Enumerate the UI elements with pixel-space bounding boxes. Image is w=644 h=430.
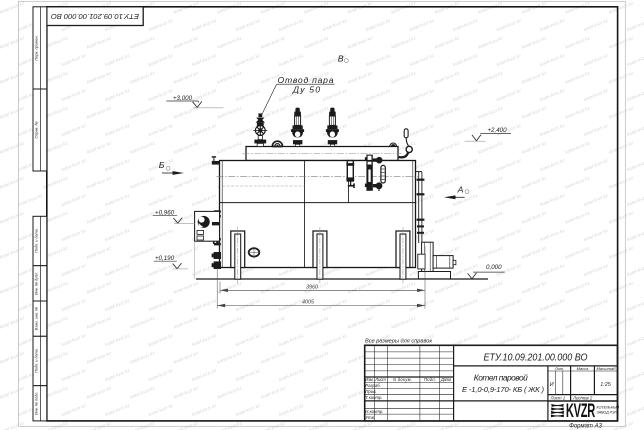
svg-text:4005: 4005 — [302, 300, 315, 306]
svg-text:0,000: 0,000 — [486, 264, 502, 271]
svg-text:Котел паровой: Котел паровой — [474, 372, 528, 382]
svg-text:Инв. № подл.: Инв. № подл. — [34, 392, 38, 416]
svg-text:Подп. и дата: Подп. и дата — [34, 349, 38, 373]
svg-text:Подп. и дата: Подп. и дата — [34, 229, 38, 253]
svg-text:Все размеры для справок: Все размеры для справок — [365, 338, 432, 344]
svg-text:Н.контр.: Н.контр. — [365, 409, 383, 414]
svg-text:N докум.: N докум. — [393, 377, 412, 382]
svg-text:И: И — [550, 382, 554, 388]
svg-text:Справ. №: Справ. № — [34, 121, 38, 138]
svg-text:Отвод пара: Отвод пара — [278, 75, 334, 85]
svg-text:Формат А3: Формат А3 — [569, 424, 602, 430]
svg-text:Масса: Масса — [577, 366, 590, 371]
svg-text:Ду 50: Ду 50 — [292, 84, 320, 94]
svg-text:КОТЕЛЬНЫЙ: КОТЕЛЬНЫЙ — [597, 406, 620, 410]
svg-text:Утв.: Утв. — [365, 415, 375, 420]
svg-text:+0,190: +0,190 — [155, 255, 175, 262]
svg-text:ЕТУ.10.09.201.00.000 ВО: ЕТУ.10.09.201.00.000 ВО — [484, 352, 588, 364]
svg-text:Лист: Лист — [374, 377, 386, 382]
svg-text:Е -1,0-0,9-170- КБ ( ЖК ): Е -1,0-0,9-170- КБ ( ЖК ) — [462, 385, 544, 394]
svg-text:Пров.: Пров. — [365, 389, 376, 394]
svg-text:Дата: Дата — [440, 377, 452, 382]
svg-text:3960: 3960 — [306, 284, 318, 290]
svg-text:Взам. инв. №: Взам. инв. № — [34, 307, 38, 330]
svg-text:1:25: 1:25 — [600, 382, 611, 388]
svg-text:Перв. примен.: Перв. примен. — [34, 35, 38, 60]
svg-text:Т.контр.: Т.контр. — [365, 395, 382, 400]
svg-text:А: А — [457, 184, 464, 194]
svg-text:ЗАВОД РЭП: ЗАВОД РЭП — [597, 411, 618, 415]
svg-text:Масштаб: Масштаб — [597, 366, 617, 371]
svg-text:Лит.: Лит. — [554, 366, 564, 371]
svg-text:+2,400: +2,400 — [487, 127, 507, 134]
svg-text:Подп.: Подп. — [424, 377, 436, 382]
svg-text:ЕТУ.10.09.201.00.000 ВО: ЕТУ.10.09.201.00.000 ВО — [51, 12, 139, 21]
svg-text:Изм.: Изм. — [365, 377, 374, 382]
svg-text:Инв. № дубл.: Инв. № дубл. — [34, 272, 38, 295]
svg-text:В: В — [338, 53, 344, 63]
svg-text:Разраб.: Разраб. — [365, 383, 381, 388]
svg-text:KVZR: KVZR — [566, 401, 595, 422]
svg-text:Лист 1: Лист 1 — [550, 395, 566, 400]
svg-text:Б: Б — [159, 160, 165, 170]
svg-text:Листов 2: Листов 2 — [572, 395, 593, 400]
